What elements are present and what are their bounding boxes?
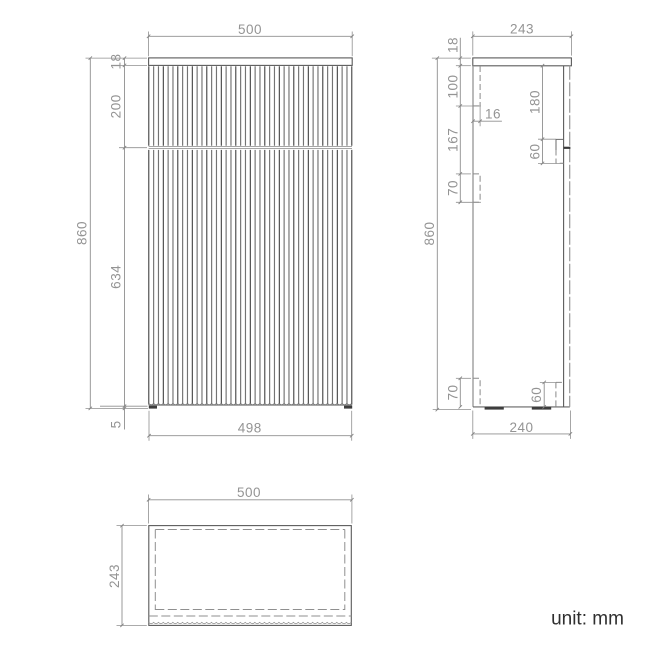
svg-text:860: 860 (75, 221, 90, 245)
svg-text:100: 100 (446, 74, 461, 98)
svg-text:60: 60 (527, 143, 542, 159)
svg-text:243: 243 (107, 564, 122, 588)
svg-text:unit: mm: unit: mm (551, 609, 624, 630)
svg-text:243: 243 (510, 22, 534, 37)
svg-text:860: 860 (422, 221, 437, 245)
svg-text:498: 498 (238, 421, 262, 436)
svg-text:500: 500 (238, 22, 262, 37)
svg-text:180: 180 (527, 90, 542, 114)
svg-text:18: 18 (446, 37, 461, 53)
svg-text:167: 167 (446, 128, 461, 152)
svg-text:60: 60 (529, 387, 544, 403)
svg-text:200: 200 (109, 94, 124, 118)
svg-text:16: 16 (485, 107, 501, 122)
svg-text:70: 70 (446, 384, 461, 400)
svg-text:240: 240 (509, 420, 533, 435)
svg-text:18: 18 (109, 53, 124, 69)
svg-text:5: 5 (109, 420, 124, 428)
svg-text:70: 70 (446, 180, 461, 196)
svg-text:634: 634 (109, 265, 124, 289)
svg-text:500: 500 (237, 485, 261, 500)
